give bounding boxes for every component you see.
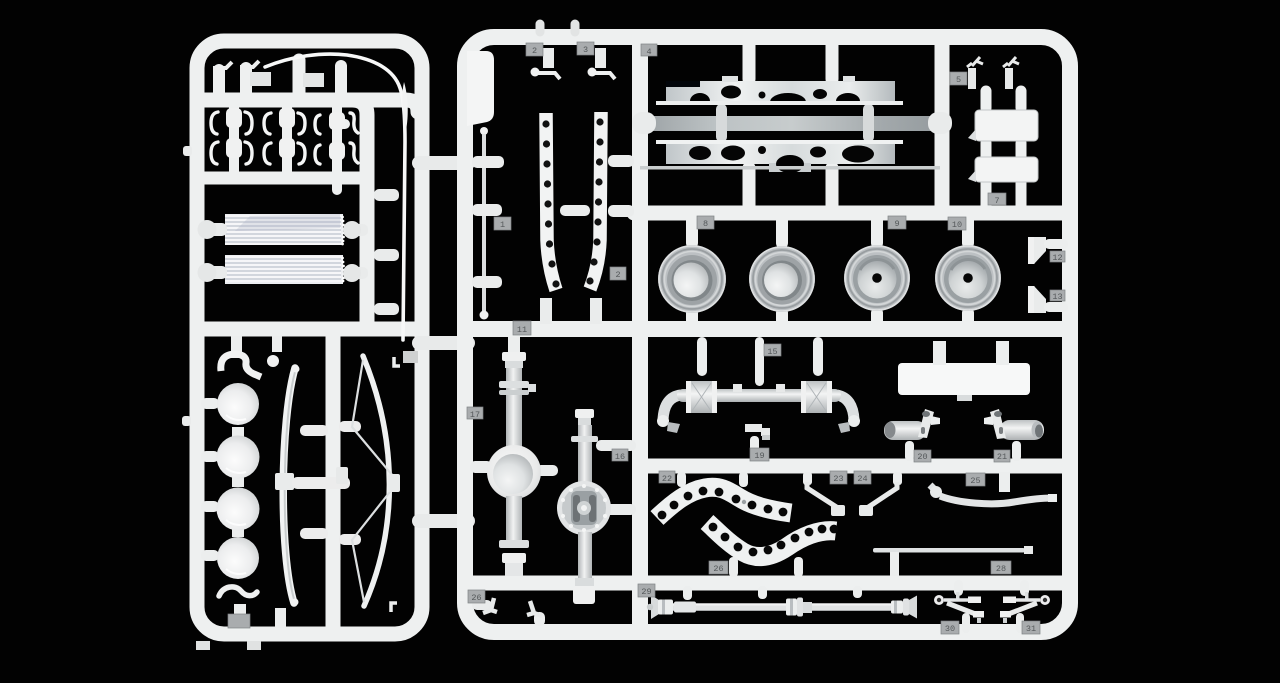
svg-text:9: 9 xyxy=(894,219,899,229)
svg-text:22: 22 xyxy=(662,474,672,484)
svg-text:2: 2 xyxy=(615,270,620,280)
svg-text:30: 30 xyxy=(945,624,955,634)
svg-text:8: 8 xyxy=(703,219,708,229)
svg-text:3: 3 xyxy=(583,45,588,55)
svg-text:12: 12 xyxy=(1052,253,1062,263)
svg-text:26: 26 xyxy=(471,593,481,603)
svg-text:11: 11 xyxy=(517,325,527,335)
svg-text:17: 17 xyxy=(470,410,480,420)
svg-text:2: 2 xyxy=(532,46,537,56)
svg-text:4: 4 xyxy=(646,47,651,57)
svg-text:15: 15 xyxy=(767,347,777,357)
svg-text:7: 7 xyxy=(994,196,999,206)
svg-text:28: 28 xyxy=(996,564,1006,574)
svg-text:19: 19 xyxy=(754,451,764,461)
svg-text:20: 20 xyxy=(917,452,927,462)
svg-text:5: 5 xyxy=(956,75,961,85)
svg-text:29: 29 xyxy=(641,587,651,597)
svg-text:31: 31 xyxy=(1026,624,1036,634)
svg-text:25: 25 xyxy=(970,476,980,486)
svg-text:13: 13 xyxy=(1052,292,1062,302)
svg-text:23: 23 xyxy=(833,474,843,484)
svg-text:24: 24 xyxy=(857,474,867,484)
svg-text:10: 10 xyxy=(952,220,962,230)
svg-text:1: 1 xyxy=(500,220,505,230)
svg-text:16: 16 xyxy=(615,452,625,462)
svg-text:26: 26 xyxy=(713,564,723,574)
svg-text:21: 21 xyxy=(997,452,1007,462)
